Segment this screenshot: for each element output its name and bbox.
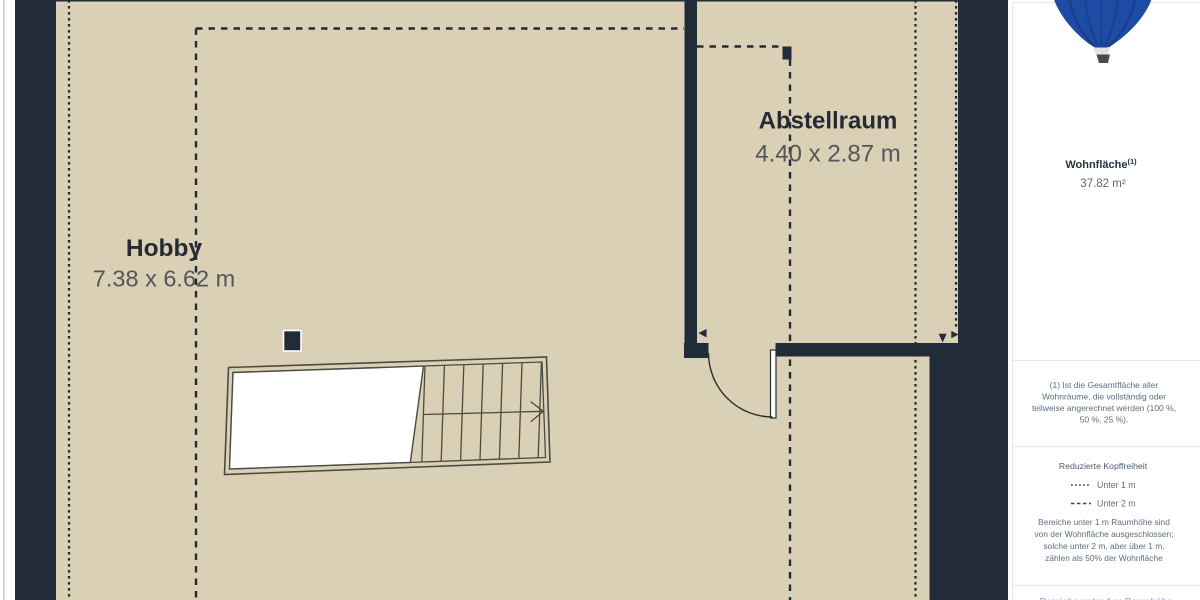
svg-text:(1) Ist die Gesamtfläche aller: (1) Ist die Gesamtfläche aller: [1050, 380, 1159, 390]
svg-text:Wohnfläche(1): Wohnfläche(1): [1065, 157, 1137, 171]
svg-text:Bereiche unter 1 m Raumhöhe si: Bereiche unter 1 m Raumhöhe sind: [1038, 517, 1170, 527]
svg-text:7.38 x 6.62 m: 7.38 x 6.62 m: [93, 266, 235, 292]
svg-text:4.40 x 2.87 m: 4.40 x 2.87 m: [755, 141, 900, 168]
svg-text:zählen als 50% der Wohnfläche: zählen als 50% der Wohnfläche: [1045, 553, 1163, 563]
svg-text:Abstellraum: Abstellraum: [759, 108, 898, 135]
svg-text:Hobby: Hobby: [126, 235, 203, 262]
svg-text:Unter 1 m: Unter 1 m: [1097, 480, 1136, 490]
svg-text:von der Wohnfläche ausgeschlos: von der Wohnfläche ausgeschlossen;: [1034, 529, 1173, 539]
svg-text:Unter 2 m: Unter 2 m: [1097, 499, 1136, 509]
svg-text:Reduzierte Kopffreiheit: Reduzierte Kopffreiheit: [1059, 461, 1148, 471]
svg-text:37.82 m²: 37.82 m²: [1080, 178, 1126, 190]
svg-text:Bereiche unter 1 m Raumhöhe: Bereiche unter 1 m Raumhöhe: [1040, 597, 1173, 600]
svg-text:teilweise angerechnet werden (: teilweise angerechnet werden (100 %,: [1032, 403, 1176, 413]
svg-text:Wohnräume, die vollständig ode: Wohnräume, die vollständig oder: [1042, 392, 1166, 402]
svg-text:solche unter 2 m, aber über 1: solche unter 2 m, aber über 1 m,: [1043, 541, 1164, 551]
svg-text:50 %, 25 %).: 50 %, 25 %).: [1080, 415, 1129, 425]
